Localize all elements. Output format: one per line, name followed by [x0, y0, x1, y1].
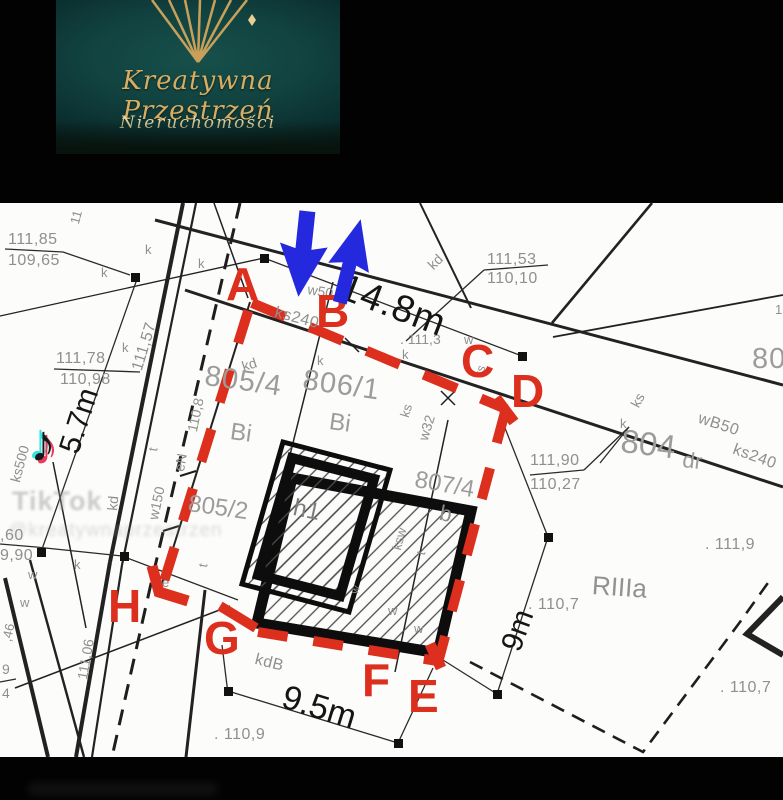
- arrow-up-icon: [319, 214, 381, 308]
- tiktok-video-frame: Kreatywna Przestrzeń Nieruchomości: [0, 0, 783, 800]
- annotation-arrows: [0, 0, 783, 800]
- arrow-down-icon: [275, 209, 332, 300]
- bottom-smudge: [28, 782, 218, 796]
